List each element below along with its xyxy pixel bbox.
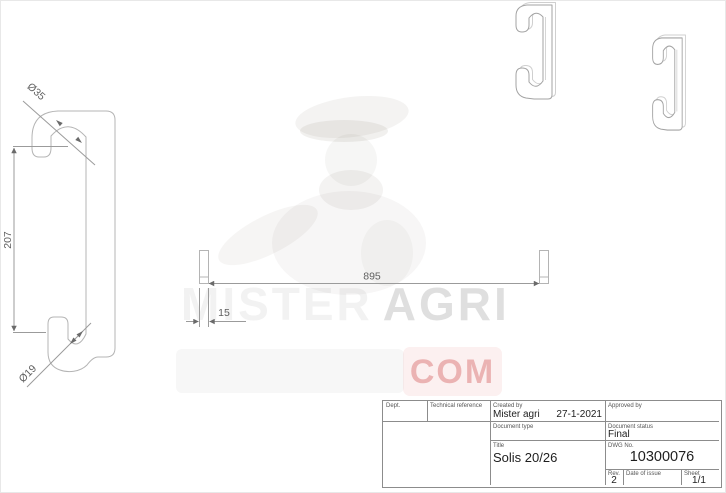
dwg-no-value: 10300076 — [605, 450, 719, 465]
hook-3d-view-1 — [516, 3, 556, 100]
created-date-value: 27-1-2021 — [490, 410, 602, 420]
title-label: Title — [493, 443, 504, 449]
bar-right-end — [540, 251, 549, 284]
document-status-value: Final — [608, 430, 630, 440]
bar-left-end — [200, 251, 209, 284]
technical-reference-label: Technical reference — [430, 403, 482, 409]
rev-value: 2 — [605, 476, 623, 486]
date-of-issue-label: Date of issue — [626, 471, 661, 477]
engineering-drawing-page: MISTERAGRI COM 207 Ø35 — [0, 0, 726, 493]
hook-3d-view-2 — [653, 35, 686, 130]
dim-bottom-hook-diameter: Ø19 — [17, 363, 40, 386]
sheet-value: 1/1 — [681, 476, 717, 486]
title-block: Dept. Technical reference Created by Mis… — [382, 400, 722, 488]
side-view-dimensions — [13, 101, 95, 387]
dim-length-value: 895 — [363, 271, 381, 283]
dim-thickness-value: 15 — [218, 307, 230, 319]
approved-by-label: Approved by — [608, 403, 642, 409]
document-type-label: Document type — [493, 424, 533, 430]
bar-view-dimensions — [186, 284, 539, 328]
drawing-title-value: Solis 20/26 — [493, 451, 557, 464]
dim-top-hook-diameter: Ø35 — [25, 81, 48, 103]
dept-label: Dept. — [386, 403, 400, 409]
dim-height-value: 207 — [2, 231, 14, 249]
